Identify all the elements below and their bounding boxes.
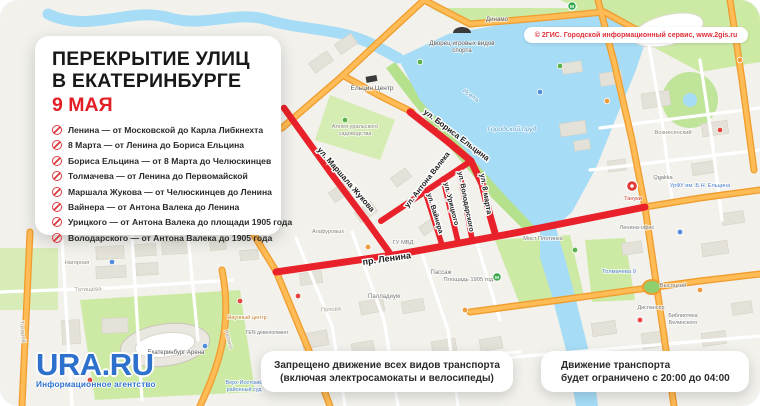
building	[731, 301, 752, 316]
panel-title-line2: В ЕКАТЕРИНБУРГЕ	[52, 70, 264, 92]
building	[136, 262, 159, 275]
map-attribution: © 2ГИС. Городской информационный сервис,…	[524, 27, 748, 43]
poi-label: Ленина-офис	[620, 225, 655, 231]
building	[561, 61, 582, 75]
ban-note-line1: Запрещено движение всех видов транспорта	[274, 359, 500, 372]
poi-dot	[109, 259, 115, 265]
closure-item-text: Бориса Ельцина — от 8 Марта до Челюскинц…	[68, 156, 271, 166]
closure-item-text: Володарского — от Антона Валека до 1905 …	[68, 233, 272, 243]
restaurant-marker	[627, 181, 638, 192]
no-entry-icon	[52, 187, 62, 197]
closure-list-item: 8 Марта — от Ленина до Бориса Ельцина	[52, 140, 264, 150]
poi-label: районный суд	[227, 386, 263, 393]
poi-label: TEN девелопмент	[245, 330, 289, 336]
poi-label: спорта	[452, 47, 472, 54]
closure-item-text: Маршала Жукова — от Челюскинцев до Ленин…	[68, 187, 272, 197]
no-entry-icon	[52, 125, 62, 135]
ban-note: Запрещено движение всех видов транспорта…	[261, 351, 513, 392]
poi-label: Научный центр	[227, 314, 267, 321]
building	[61, 320, 80, 345]
closure-list-item: Урицкого — от Антона Валека до площади 1…	[52, 217, 264, 227]
closures-panel: ПЕРЕКРЫТИЕ УЛИЦ В ЕКАТЕРИНБУРГЕ 9 МАЯ Ле…	[35, 36, 281, 235]
poi-label: садоводства	[339, 131, 373, 137]
poi-label: Агафуровых	[312, 229, 344, 235]
closure-item-text: Вайнера — от Антона Валека до Ленина	[68, 202, 239, 212]
poi-dot	[295, 293, 301, 299]
poi-label: Вознесенский	[654, 129, 691, 136]
closure-item-text: Ленина — от Московской до Карла Либкнехт…	[68, 125, 263, 135]
poi-dot	[365, 244, 371, 250]
poi-label: Верх-Исетский	[226, 379, 263, 386]
limit-note: Движение транспорта будет ограничено с 2…	[541, 351, 749, 392]
poi-dot	[604, 98, 610, 104]
no-entry-icon	[52, 233, 62, 243]
building	[132, 243, 157, 256]
building	[102, 318, 129, 334]
poi-dot	[417, 59, 423, 65]
closure-list-item: Толмачева — от Ленина до Первомайской	[52, 171, 264, 181]
poi-dot	[237, 298, 243, 304]
poi-label: Площадь 1905 года	[443, 277, 497, 283]
closure-item-text: Урицкого — от Антона Валека до площади 1…	[68, 217, 292, 227]
closure-item-text: Толмачева — от Ленина до Первомайской	[68, 171, 248, 181]
closure-list-item: Ленина — от Московской до Карла Либкнехт…	[52, 125, 264, 135]
building	[573, 139, 590, 151]
panel-title-line1: ПЕРЕКРЫТИЕ УЛИЦ	[52, 48, 264, 70]
poi-label: Толмачева 9	[602, 269, 636, 275]
poi-dot	[737, 57, 743, 63]
poi-dot	[637, 317, 643, 323]
poi-label: УрФУ им. Б.Н. Ельцина	[670, 183, 731, 189]
poi-dot	[697, 287, 703, 293]
building	[621, 241, 642, 256]
infographic-card: пр. Ленинаул. Маршала Жуковаул. Бориса Е…	[0, 0, 760, 406]
attribution-text: © 2ГИС. Городской информационный сервис,…	[535, 32, 737, 39]
poi-dot	[202, 343, 208, 349]
poi-label: Quakka	[653, 175, 673, 181]
poi-label: Екатеринбург Арена	[148, 350, 205, 356]
poi-label: Библиотека	[668, 313, 697, 319]
panel-title: ПЕРЕКРЫТИЕ УЛИЦ В ЕКАТЕРИНБУРГЕ	[52, 48, 264, 92]
poi-label: Городской пруд	[488, 125, 537, 133]
logo-name: URA.RU	[36, 349, 156, 380]
roundabout	[643, 280, 661, 294]
closure-list-item: Вайнера — от Антона Валека до Ленина	[52, 202, 264, 212]
poi-dot	[537, 89, 543, 95]
metro-letter: М	[570, 4, 574, 10]
poi-label: ГУ МВД	[393, 240, 414, 246]
restaurant-marker-dot	[630, 184, 634, 188]
ban-note-line2: (включая электросамокаты и велосипеды)	[280, 372, 494, 385]
poi-label: Дворец игровых видов	[429, 40, 495, 47]
poi-dot	[462, 307, 468, 313]
building	[240, 249, 259, 261]
poi-dot	[342, 117, 348, 123]
building	[96, 265, 127, 279]
no-entry-icon	[52, 217, 62, 227]
closure-list-item: Бориса Ельцина — от 8 Марта до Челюскинц…	[52, 156, 264, 166]
closure-list: Ленина — от Московской до Карла Либкнехт…	[52, 125, 264, 243]
panel-date: 9 МАЯ	[52, 94, 264, 117]
poi-label: Высоцкий	[660, 282, 687, 289]
no-entry-icon	[52, 140, 62, 150]
poi-dot	[677, 229, 683, 235]
no-entry-icon	[52, 156, 62, 166]
poi-dot	[717, 127, 723, 133]
metro-letter: М	[495, 275, 499, 281]
poi-label: Динамо	[486, 16, 509, 23]
poi-label: Ельцин Центр	[351, 85, 394, 92]
closure-item-text: 8 Марта — от Ленина до Бориса Ельцина	[68, 140, 244, 150]
poi-label: Тануки	[624, 196, 642, 202]
poi-label: Аллея уральского	[332, 124, 379, 130]
logo-tagline: Информационное агентство	[36, 381, 156, 389]
poi-dot	[572, 247, 578, 253]
poi-dot	[557, 63, 563, 69]
building	[96, 245, 125, 259]
closure-list-item: Володарского — от Антона Валека до 1905 …	[52, 233, 264, 243]
poi-label: Палладиум	[368, 294, 400, 300]
poi-label: Татищева	[74, 287, 102, 294]
limit-note-line2: будет ограничено с 20:00 до 04:00	[561, 372, 730, 385]
no-entry-icon	[52, 171, 62, 181]
no-entry-icon	[52, 202, 62, 212]
poi-label: Диспансер	[638, 305, 665, 311]
closure-list-item: Маршала Жукова — от Челюскинцев до Ленин…	[52, 187, 264, 197]
poi-label: Пассаж	[431, 270, 452, 276]
ura-ru-logo: URA.RU Информационное агентство	[36, 349, 156, 389]
limit-note-line1: Движение транспорта	[561, 359, 670, 372]
poi-label: Мост Плотинка	[523, 236, 563, 242]
poi-label: Белинского	[669, 320, 697, 326]
poi-label: Нагорная	[65, 260, 90, 266]
park-pond	[683, 93, 697, 107]
